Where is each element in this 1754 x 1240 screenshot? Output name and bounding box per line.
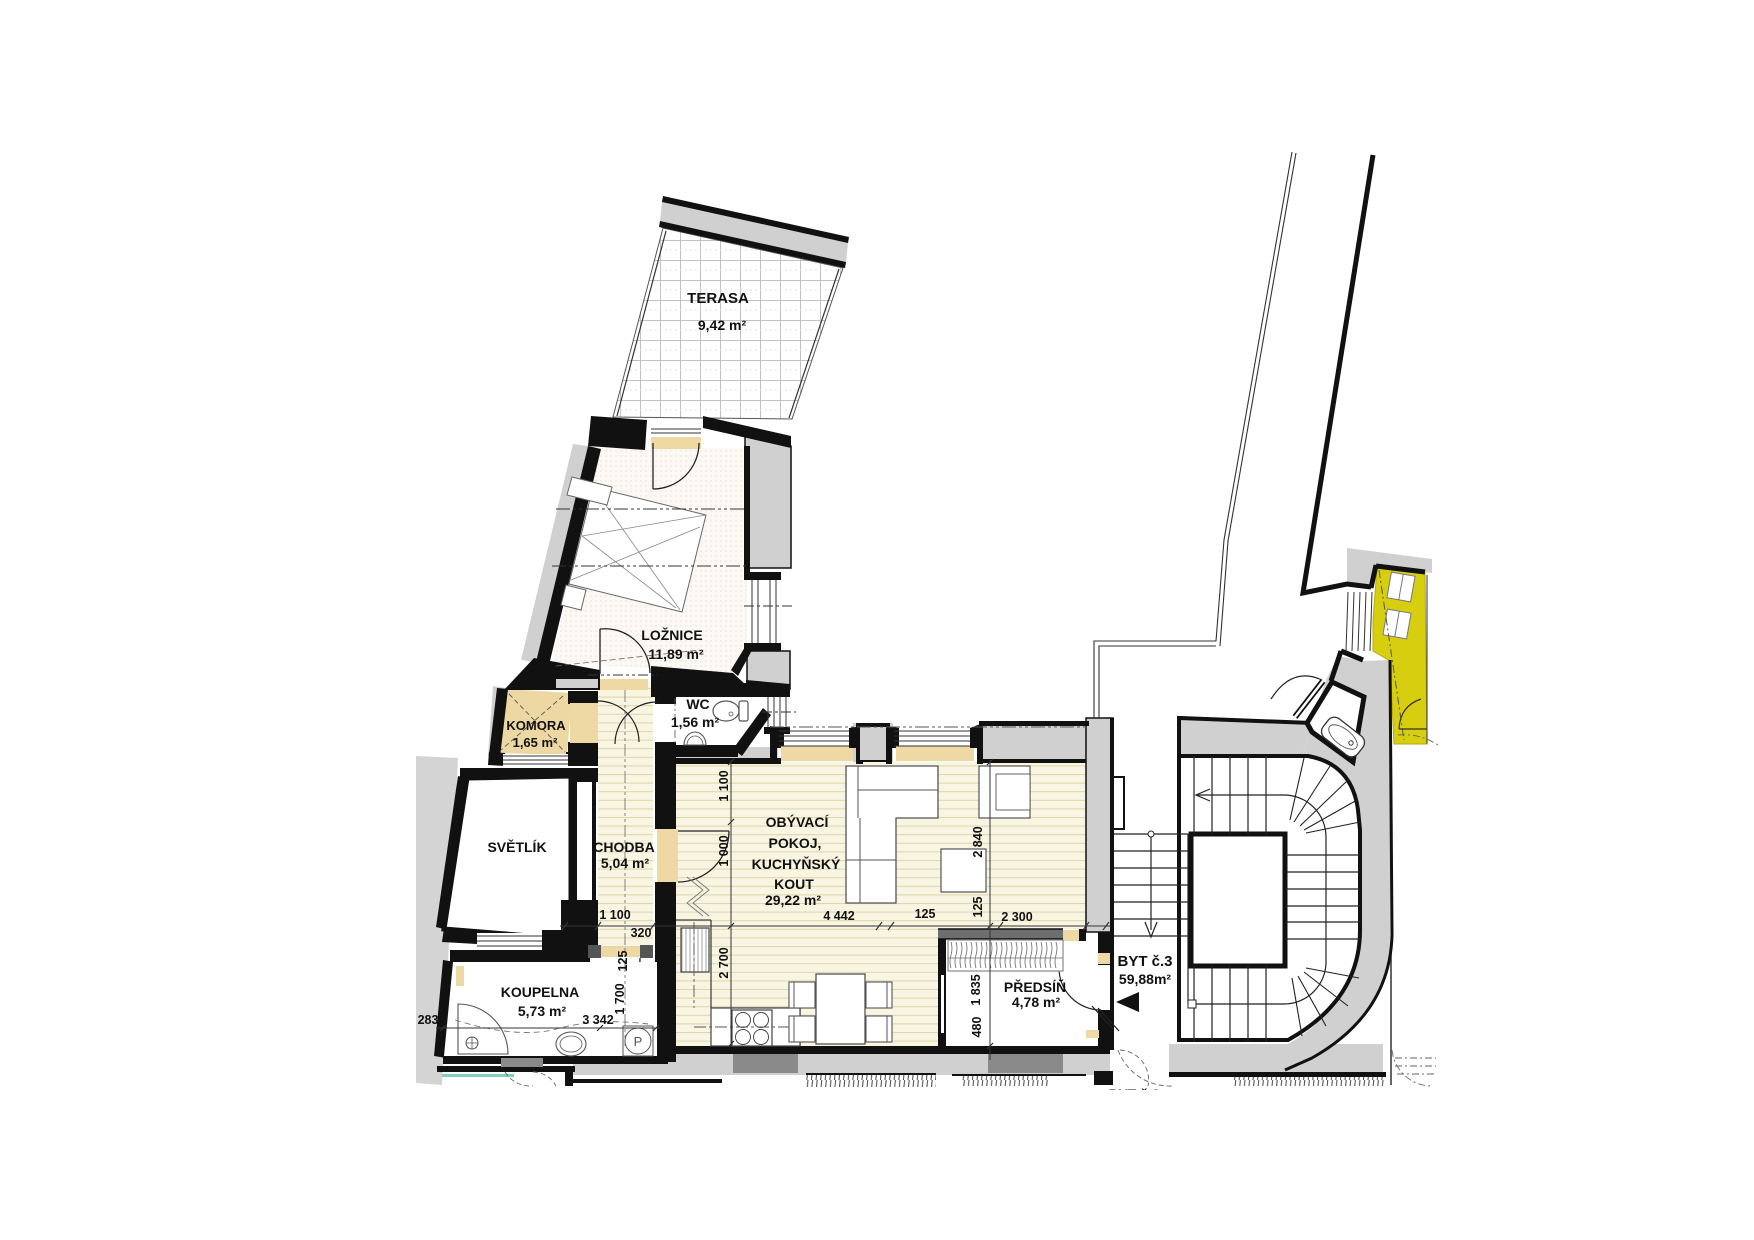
svg-text:9,42 m²: 9,42 m² [698, 317, 747, 333]
svg-text:KOUPELNA: KOUPELNA [501, 984, 580, 1000]
svg-text:1 100: 1 100 [599, 908, 630, 922]
svg-text:1 000: 1 000 [717, 835, 731, 866]
svg-text:283: 283 [418, 1013, 439, 1027]
svg-text:2 300: 2 300 [1001, 910, 1032, 924]
svg-text:LOŽNICE: LOŽNICE [641, 626, 702, 643]
svg-text:59,88m²: 59,88m² [1119, 971, 1171, 987]
svg-text:320: 320 [631, 926, 652, 940]
svg-text:4,78 m²: 4,78 m² [1012, 994, 1061, 1010]
svg-text:29,22 m²: 29,22 m² [765, 892, 821, 908]
svg-text:125: 125 [971, 897, 985, 918]
svg-text:125: 125 [915, 907, 936, 921]
svg-text:BYT č.3: BYT č.3 [1117, 953, 1172, 970]
svg-text:POKOJ,: POKOJ, [769, 835, 822, 851]
svg-text:KOMORA: KOMORA [506, 718, 566, 733]
svg-text:2 840: 2 840 [971, 826, 985, 857]
svg-text:1 100: 1 100 [717, 770, 731, 801]
svg-text:480: 480 [970, 1017, 984, 1038]
svg-text:PŘEDSÍŇ: PŘEDSÍŇ [1004, 978, 1066, 995]
svg-text:P: P [634, 1034, 643, 1049]
svg-text:5,73 m²: 5,73 m² [518, 1003, 567, 1019]
svg-text:1,65 m²: 1,65 m² [513, 735, 558, 750]
svg-text:WC: WC [686, 696, 709, 712]
svg-text:OBÝVACÍ: OBÝVACÍ [766, 813, 830, 830]
svg-text:1,56 m²: 1,56 m² [671, 714, 720, 730]
svg-text:4 442: 4 442 [823, 909, 854, 923]
svg-text:TERASA: TERASA [687, 290, 749, 307]
svg-text:11,89 m²: 11,89 m² [648, 646, 704, 662]
svg-text:1 835: 1 835 [969, 974, 983, 1005]
svg-text:2 700: 2 700 [717, 947, 731, 978]
svg-text:1 700: 1 700 [613, 983, 627, 1014]
svg-text:3 342: 3 342 [582, 1013, 613, 1027]
svg-text:KOUT: KOUT [774, 876, 814, 892]
svg-text:KUCHYŇSKÝ: KUCHYŇSKÝ [752, 855, 841, 872]
svg-text:5,04 m²: 5,04 m² [601, 855, 650, 871]
svg-text:SVĚTLÍK: SVĚTLÍK [487, 838, 546, 855]
svg-text:CHODBA: CHODBA [593, 839, 654, 855]
svg-text:125: 125 [616, 951, 630, 972]
